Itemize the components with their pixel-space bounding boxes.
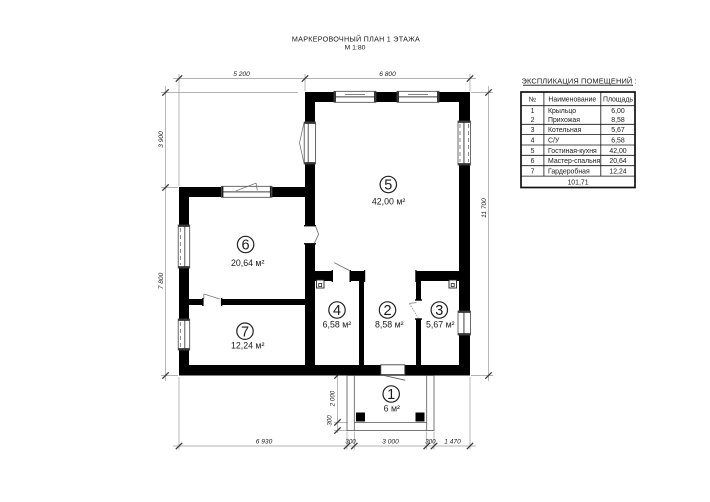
svg-text:7: 7 [241,324,249,340]
svg-text:Котельная: Котельная [548,127,582,134]
svg-text:3: 3 [435,303,443,319]
svg-text:Крыльцо: Крыльцо [548,108,576,115]
svg-text:101,71: 101,71 [567,180,588,187]
svg-text:ЭКСПЛИКАЦИЯ ПОМЕЩЕНИЙ :: ЭКСПЛИКАЦИЯ ПОМЕЩЕНИЙ : [522,76,637,85]
svg-text:4: 4 [333,303,341,319]
svg-text:Прихожая: Прихожая [548,117,580,124]
svg-text:5,67 м²: 5,67 м² [426,320,455,330]
svg-text:8,58: 8,58 [611,117,625,124]
svg-text:5,67: 5,67 [611,127,625,134]
svg-text:42,00: 42,00 [609,148,626,155]
svg-text:2: 2 [531,117,535,124]
svg-text:5: 5 [384,178,392,194]
svg-text:2: 2 [383,303,391,319]
svg-text:12,24: 12,24 [609,169,626,176]
svg-text:12,24 м²: 12,24 м² [231,340,265,350]
svg-text:11 700: 11 700 [481,198,488,218]
svg-text:8,58 м²: 8,58 м² [375,320,404,330]
svg-text:6 930: 6 930 [256,439,273,446]
svg-text:6 800: 6 800 [379,71,396,78]
svg-text:1: 1 [531,108,535,115]
svg-text:3 000: 3 000 [382,439,399,446]
svg-text:1 470: 1 470 [444,439,461,446]
svg-text:4: 4 [531,138,535,145]
svg-text:3 900: 3 900 [158,131,165,148]
svg-text:20,64: 20,64 [609,158,626,165]
svg-text:2 000: 2 000 [330,390,337,407]
svg-text:6: 6 [242,238,250,254]
svg-text:6,00: 6,00 [611,108,625,115]
svg-text:3: 3 [531,127,535,134]
svg-text:Площадь: Площадь [603,96,633,103]
svg-text:№: № [529,96,536,103]
svg-text:1: 1 [387,387,395,403]
svg-text:300: 300 [327,415,334,426]
svg-text:Гостиная-кухня: Гостиная-кухня [548,148,597,155]
svg-text:42,00 м²: 42,00 м² [372,197,406,207]
svg-text:С/У: С/У [548,138,560,145]
svg-text:7 800: 7 800 [158,272,165,289]
svg-text:6,58: 6,58 [611,138,625,145]
svg-text:20,64 м²: 20,64 м² [231,258,265,268]
svg-text:М 1:80: М 1:80 [345,45,366,52]
svg-text:6 м²: 6 м² [384,403,400,413]
svg-text:5 200: 5 200 [233,71,250,78]
svg-text:300: 300 [425,439,436,446]
svg-text:6: 6 [531,158,535,165]
svg-text:7: 7 [531,169,535,176]
svg-text:6,58 м²: 6,58 м² [323,320,352,330]
svg-text:Мастер-спальня: Мастер-спальня [548,158,601,165]
svg-text:Гардеробная: Гардеробная [548,168,590,176]
svg-text:МАРКЕРОВОЧНЫЙ ПЛАН 1 ЭТАЖА: МАРКЕРОВОЧНЫЙ ПЛАН 1 ЭТАЖА [292,35,420,44]
svg-text:Наименование: Наименование [548,96,596,103]
svg-text:5: 5 [531,148,535,155]
svg-text:300: 300 [345,439,356,446]
